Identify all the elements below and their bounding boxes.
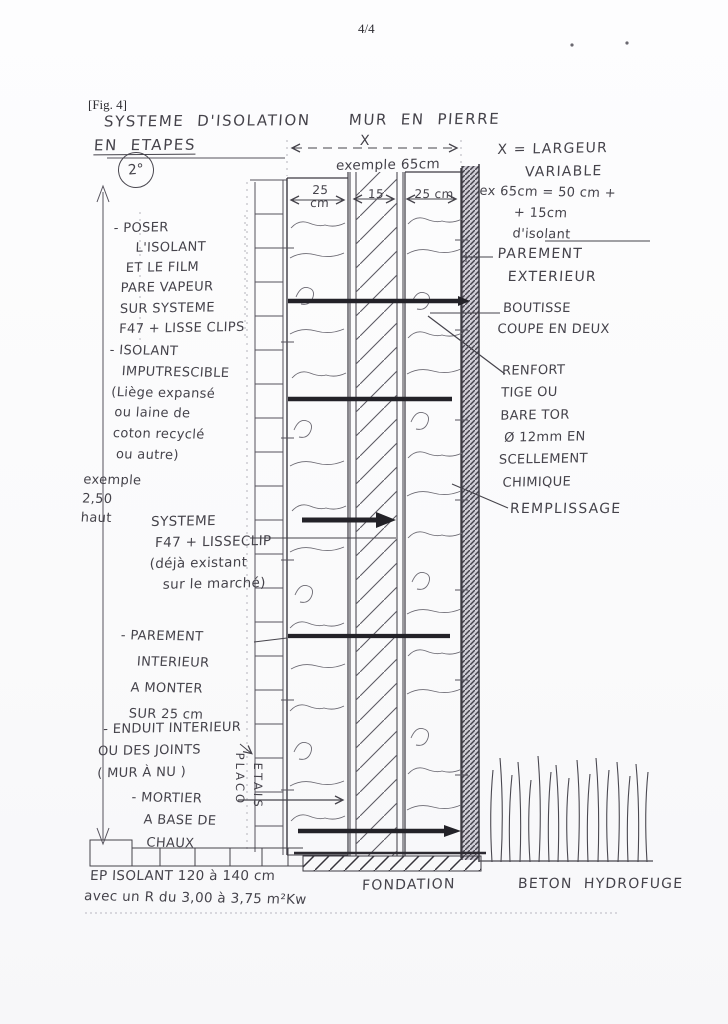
label-enduit-interieur: - ENDUIT INTERIEUR OU DES JOINTS ( MUR À… — [97, 717, 242, 785]
dim-right-wythe: 25 cm — [406, 188, 463, 201]
label-isolant-imputrescible: - ISOLANT IMPUTRESCIBLE (Liège expansé o… — [102, 341, 232, 468]
dim-left-wythe: 25 cm — [299, 184, 340, 209]
label-parement-interieur: - PAREMENT INTERIEUR A MONTER SUR 25 cm — [114, 623, 212, 729]
dim-core: 15 — [358, 188, 395, 201]
foundation — [294, 853, 486, 871]
label-placo-vertical: PLACO — [230, 752, 249, 806]
scanned-sketch-page: 4/4 [Fig. 4] SYSTEME D'ISOLATION MUR EN … — [0, 0, 728, 1024]
label-etais-vertical: ETAIS — [248, 762, 267, 810]
label-mortier-chaux: - MORTIER A BASE DE CHAUX — [128, 787, 219, 856]
diagram-title: SYSTEME D'ISOLATION MUR EN PIERRE — [103, 106, 545, 133]
label-systeme-f47: SYSTEME F47 + LISSECLIP (déjà existant s… — [148, 510, 272, 596]
dim-overall-example: exemple 65cm — [336, 154, 441, 178]
label-largeur-example: ex 65cm = 50 cm + + 15cm d'isolant — [476, 181, 617, 247]
label-poser-isolant: - POSER L'ISOLANT ET LE FILM PARE VAPEUR… — [110, 217, 249, 340]
speck — [625, 41, 628, 44]
dim-overall-label: X — [359, 130, 370, 153]
label-ep-isolant: EP ISOLANT 120 à 140 cm — [89, 866, 275, 888]
label-boutisse: BOUTISSE COUPE EN DEUX — [497, 298, 611, 340]
label-parement-exterieur: PAREMENT EXTERIEUR — [496, 243, 599, 288]
beton-hydrofuge-texture — [479, 756, 653, 862]
label-remplissage: REMPLISSAGE — [509, 498, 621, 521]
stone-texture-right — [407, 218, 462, 810]
speck — [570, 43, 573, 46]
label-fondation: FONDATION — [362, 873, 456, 897]
label-r-value: avec un R du 3,00 à 3,75 m²Kw — [83, 886, 307, 912]
label-largeur-variable: X = LARGEUR VARIABLE — [496, 137, 608, 184]
page-number: 4/4 — [358, 18, 375, 39]
label-renfort: RENFORT TIGE OU BARE TOR Ø 12mm EN SCELL… — [498, 359, 592, 495]
label-beton-hydrofuge: BETON HYDROFUGE — [517, 873, 683, 896]
dim-height-note: exemple 2,50 haut — [80, 471, 142, 529]
